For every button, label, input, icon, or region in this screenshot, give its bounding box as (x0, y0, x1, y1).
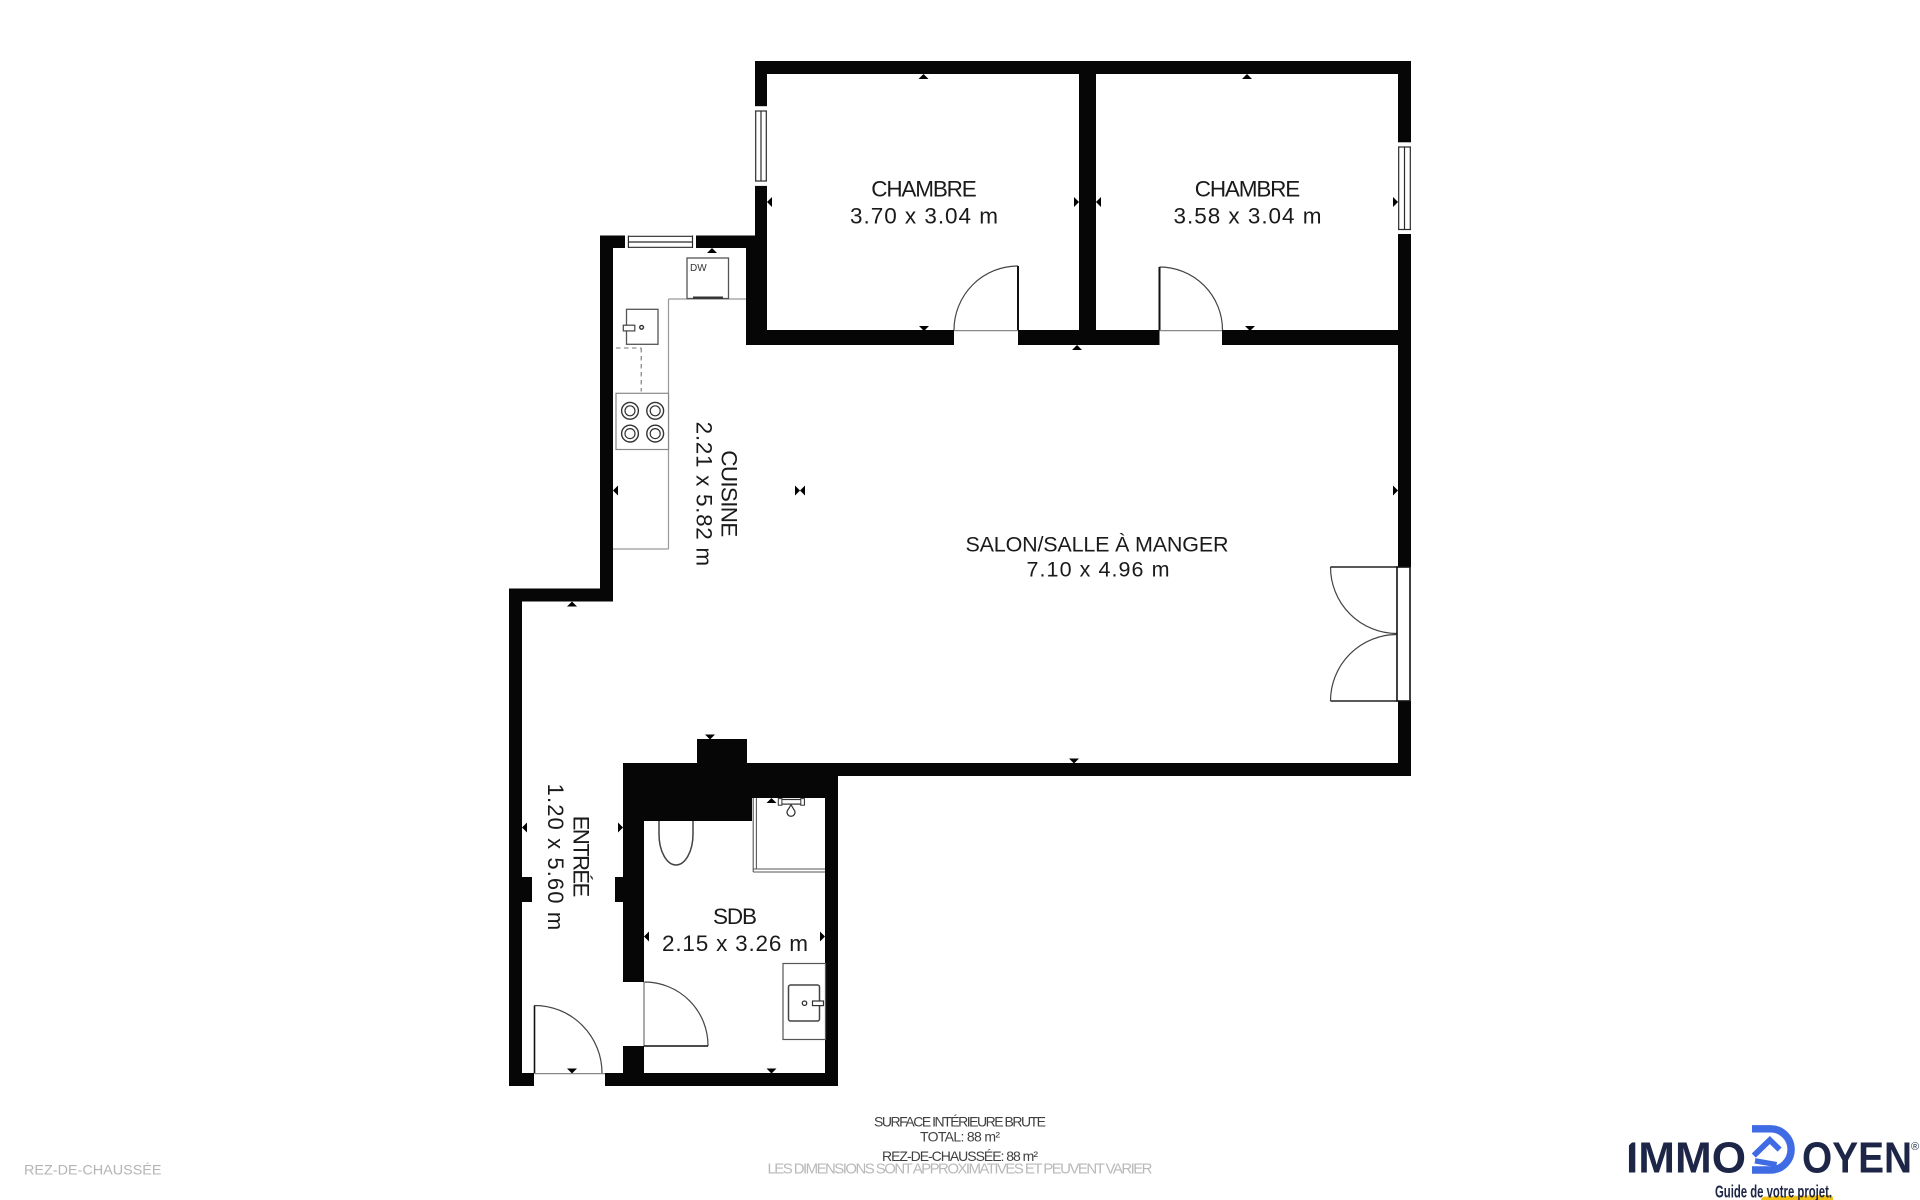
svg-text:LES DIMENSIONS SONT APPROXIMAT: LES DIMENSIONS SONT APPROXIMATIVES ET PE… (768, 1160, 1153, 1177)
svg-text:Guide de votre projet.: Guide de votre projet. (1715, 1182, 1832, 1200)
svg-text:CHAMBRE: CHAMBRE (871, 177, 977, 202)
svg-text:CHAMBRE: CHAMBRE (1195, 177, 1301, 202)
svg-text:2.21 x 5.82 m: 2.21 x 5.82 m (692, 422, 717, 567)
svg-text:TOTAL: 88 m²: TOTAL: 88 m² (920, 1128, 1000, 1144)
svg-text:3.58 x 3.04 m: 3.58 x 3.04 m (1174, 204, 1322, 229)
svg-text:IMMO: IMMO (1626, 1134, 1746, 1183)
svg-text:ENTRÉE: ENTRÉE (569, 816, 594, 898)
svg-text:SALON/SALLE À MANGER: SALON/SALLE À MANGER (966, 532, 1229, 557)
svg-text:2.15 x 3.26 m: 2.15 x 3.26 m (662, 931, 808, 956)
svg-text:DW: DW (690, 263, 707, 274)
svg-text:REZ-DE-CHAUSSÉE: REZ-DE-CHAUSSÉE (24, 1162, 162, 1178)
svg-text:SURFACE INTÉRIEURE BRUTE: SURFACE INTÉRIEURE BRUTE (874, 1113, 1046, 1129)
svg-text:3.70 x 3.04 m: 3.70 x 3.04 m (850, 204, 998, 229)
svg-text:7.10 x 4.96 m: 7.10 x 4.96 m (1027, 558, 1170, 582)
svg-text:CUISINE: CUISINE (716, 450, 741, 537)
svg-text:®: ® (1911, 1141, 1919, 1153)
svg-text:SDB: SDB (713, 904, 757, 929)
svg-text:1.20 x 5.60 m: 1.20 x 5.60 m (543, 784, 568, 931)
svg-text:OYEN: OYEN (1802, 1134, 1912, 1183)
